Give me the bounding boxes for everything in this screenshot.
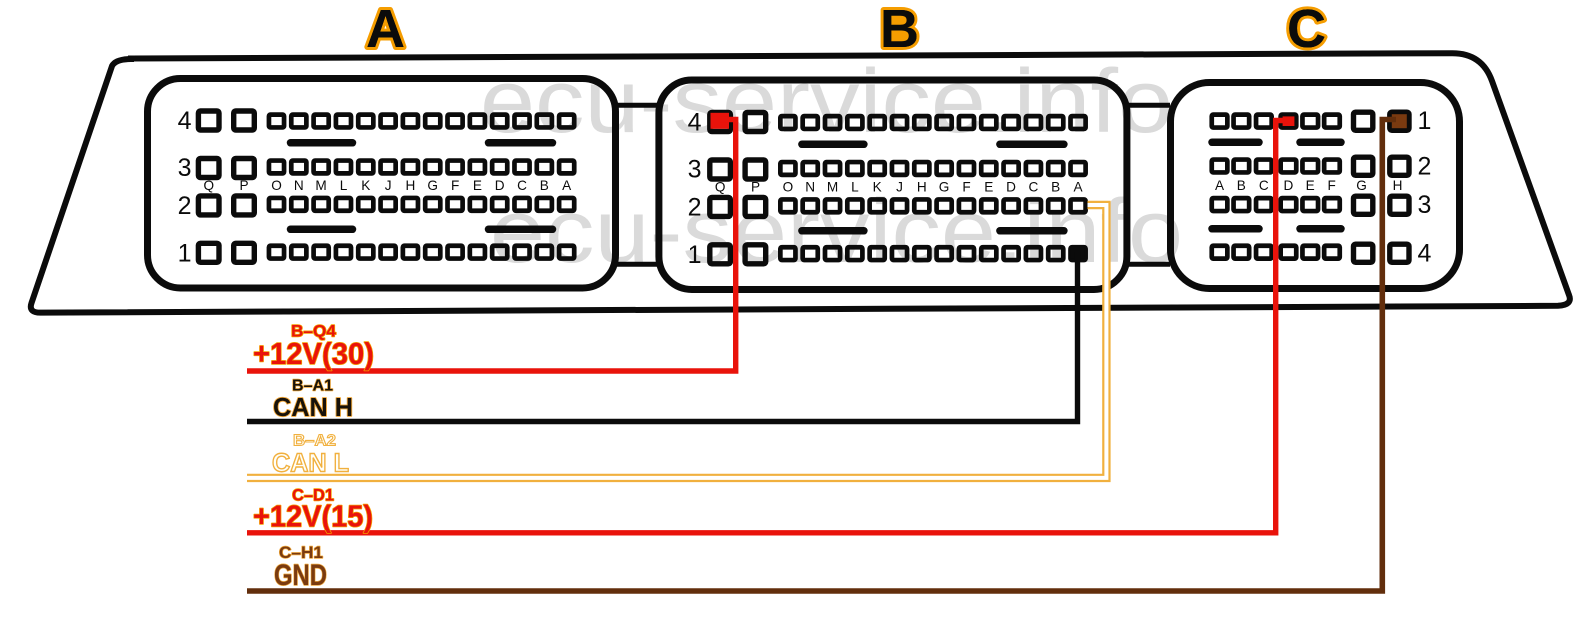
svg-text:J: J xyxy=(896,180,903,195)
svg-text:K: K xyxy=(873,180,882,195)
svg-text:1: 1 xyxy=(1418,107,1432,135)
svg-text:A: A xyxy=(1215,178,1225,193)
svg-text:F: F xyxy=(1327,178,1335,193)
svg-text:B: B xyxy=(1237,178,1246,193)
svg-text:G: G xyxy=(427,178,438,193)
svg-text:Q: Q xyxy=(204,178,215,193)
svg-text:J: J xyxy=(385,178,392,193)
svg-text:E: E xyxy=(1306,178,1315,193)
svg-text:A: A xyxy=(562,178,572,193)
svg-text:P: P xyxy=(751,180,760,195)
svg-text:O: O xyxy=(783,180,794,195)
svg-text:1: 1 xyxy=(688,241,702,269)
svg-text:4: 4 xyxy=(178,107,192,135)
svg-text:D: D xyxy=(1283,178,1293,193)
svg-text:A: A xyxy=(1074,180,1084,195)
svg-text:C: C xyxy=(1287,0,1326,59)
svg-text:3: 3 xyxy=(1418,191,1432,219)
svg-text:N: N xyxy=(294,178,304,193)
svg-text:L: L xyxy=(340,178,348,193)
svg-text:G: G xyxy=(1356,178,1367,193)
svg-text:F: F xyxy=(962,180,970,195)
svg-text:4: 4 xyxy=(688,108,702,136)
svg-text:+12V(15): +12V(15) xyxy=(253,499,373,534)
svg-text:Q: Q xyxy=(715,180,726,195)
svg-text:M: M xyxy=(315,178,326,193)
svg-text:GND: GND xyxy=(274,559,327,592)
svg-text:K: K xyxy=(361,178,370,193)
svg-text:B: B xyxy=(1051,180,1060,195)
svg-text:CAN L: CAN L xyxy=(272,448,349,478)
svg-text:G: G xyxy=(939,180,950,195)
svg-text:C: C xyxy=(517,178,527,193)
svg-text:C: C xyxy=(1259,178,1269,193)
svg-text:2: 2 xyxy=(1418,152,1432,180)
svg-text:O: O xyxy=(271,178,282,193)
svg-text:E: E xyxy=(984,180,993,195)
svg-text:ecu-service.info: ecu-service.info xyxy=(480,52,1173,152)
svg-text:H: H xyxy=(405,178,415,193)
svg-text:H: H xyxy=(917,180,927,195)
svg-text:B–A1: B–A1 xyxy=(292,378,333,395)
svg-text:E: E xyxy=(473,178,482,193)
svg-text:B: B xyxy=(540,178,549,193)
svg-text:3: 3 xyxy=(178,154,192,182)
svg-text:C: C xyxy=(1028,180,1038,195)
svg-text:L: L xyxy=(851,180,859,195)
svg-text:A: A xyxy=(366,0,405,59)
svg-text:+12V(30): +12V(30) xyxy=(253,336,374,371)
svg-text:4: 4 xyxy=(1418,239,1432,267)
svg-text:D: D xyxy=(495,178,505,193)
svg-text:M: M xyxy=(827,180,838,195)
svg-text:H: H xyxy=(1393,178,1403,193)
svg-text:3: 3 xyxy=(688,155,702,183)
svg-text:B: B xyxy=(880,0,919,59)
svg-text:N: N xyxy=(805,180,815,195)
svg-text:F: F xyxy=(451,178,459,193)
svg-text:D: D xyxy=(1006,180,1016,195)
svg-text:1: 1 xyxy=(178,239,192,267)
svg-text:2: 2 xyxy=(688,193,702,221)
svg-text:P: P xyxy=(240,178,249,193)
svg-text:2: 2 xyxy=(178,192,192,220)
svg-text:CAN H: CAN H xyxy=(273,394,353,422)
